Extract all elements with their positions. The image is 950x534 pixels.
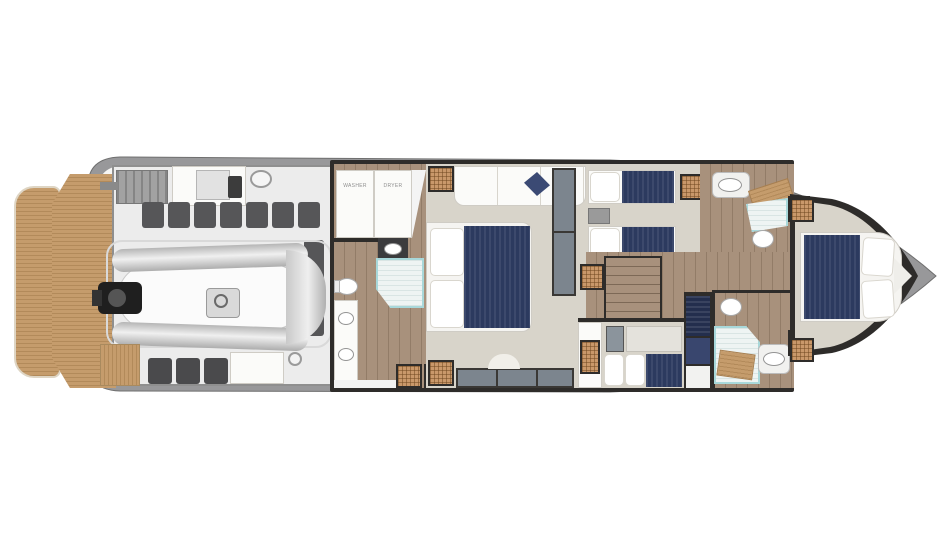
vip-hatch-top [790,198,814,222]
yacht-floor-plan: WASHER DRYER [0,0,950,534]
vip-hatch-bottom [790,338,814,362]
vip-pillow-1 [861,237,896,277]
vip-bed-spread [804,235,860,319]
vip-pillow-2 [861,279,896,319]
